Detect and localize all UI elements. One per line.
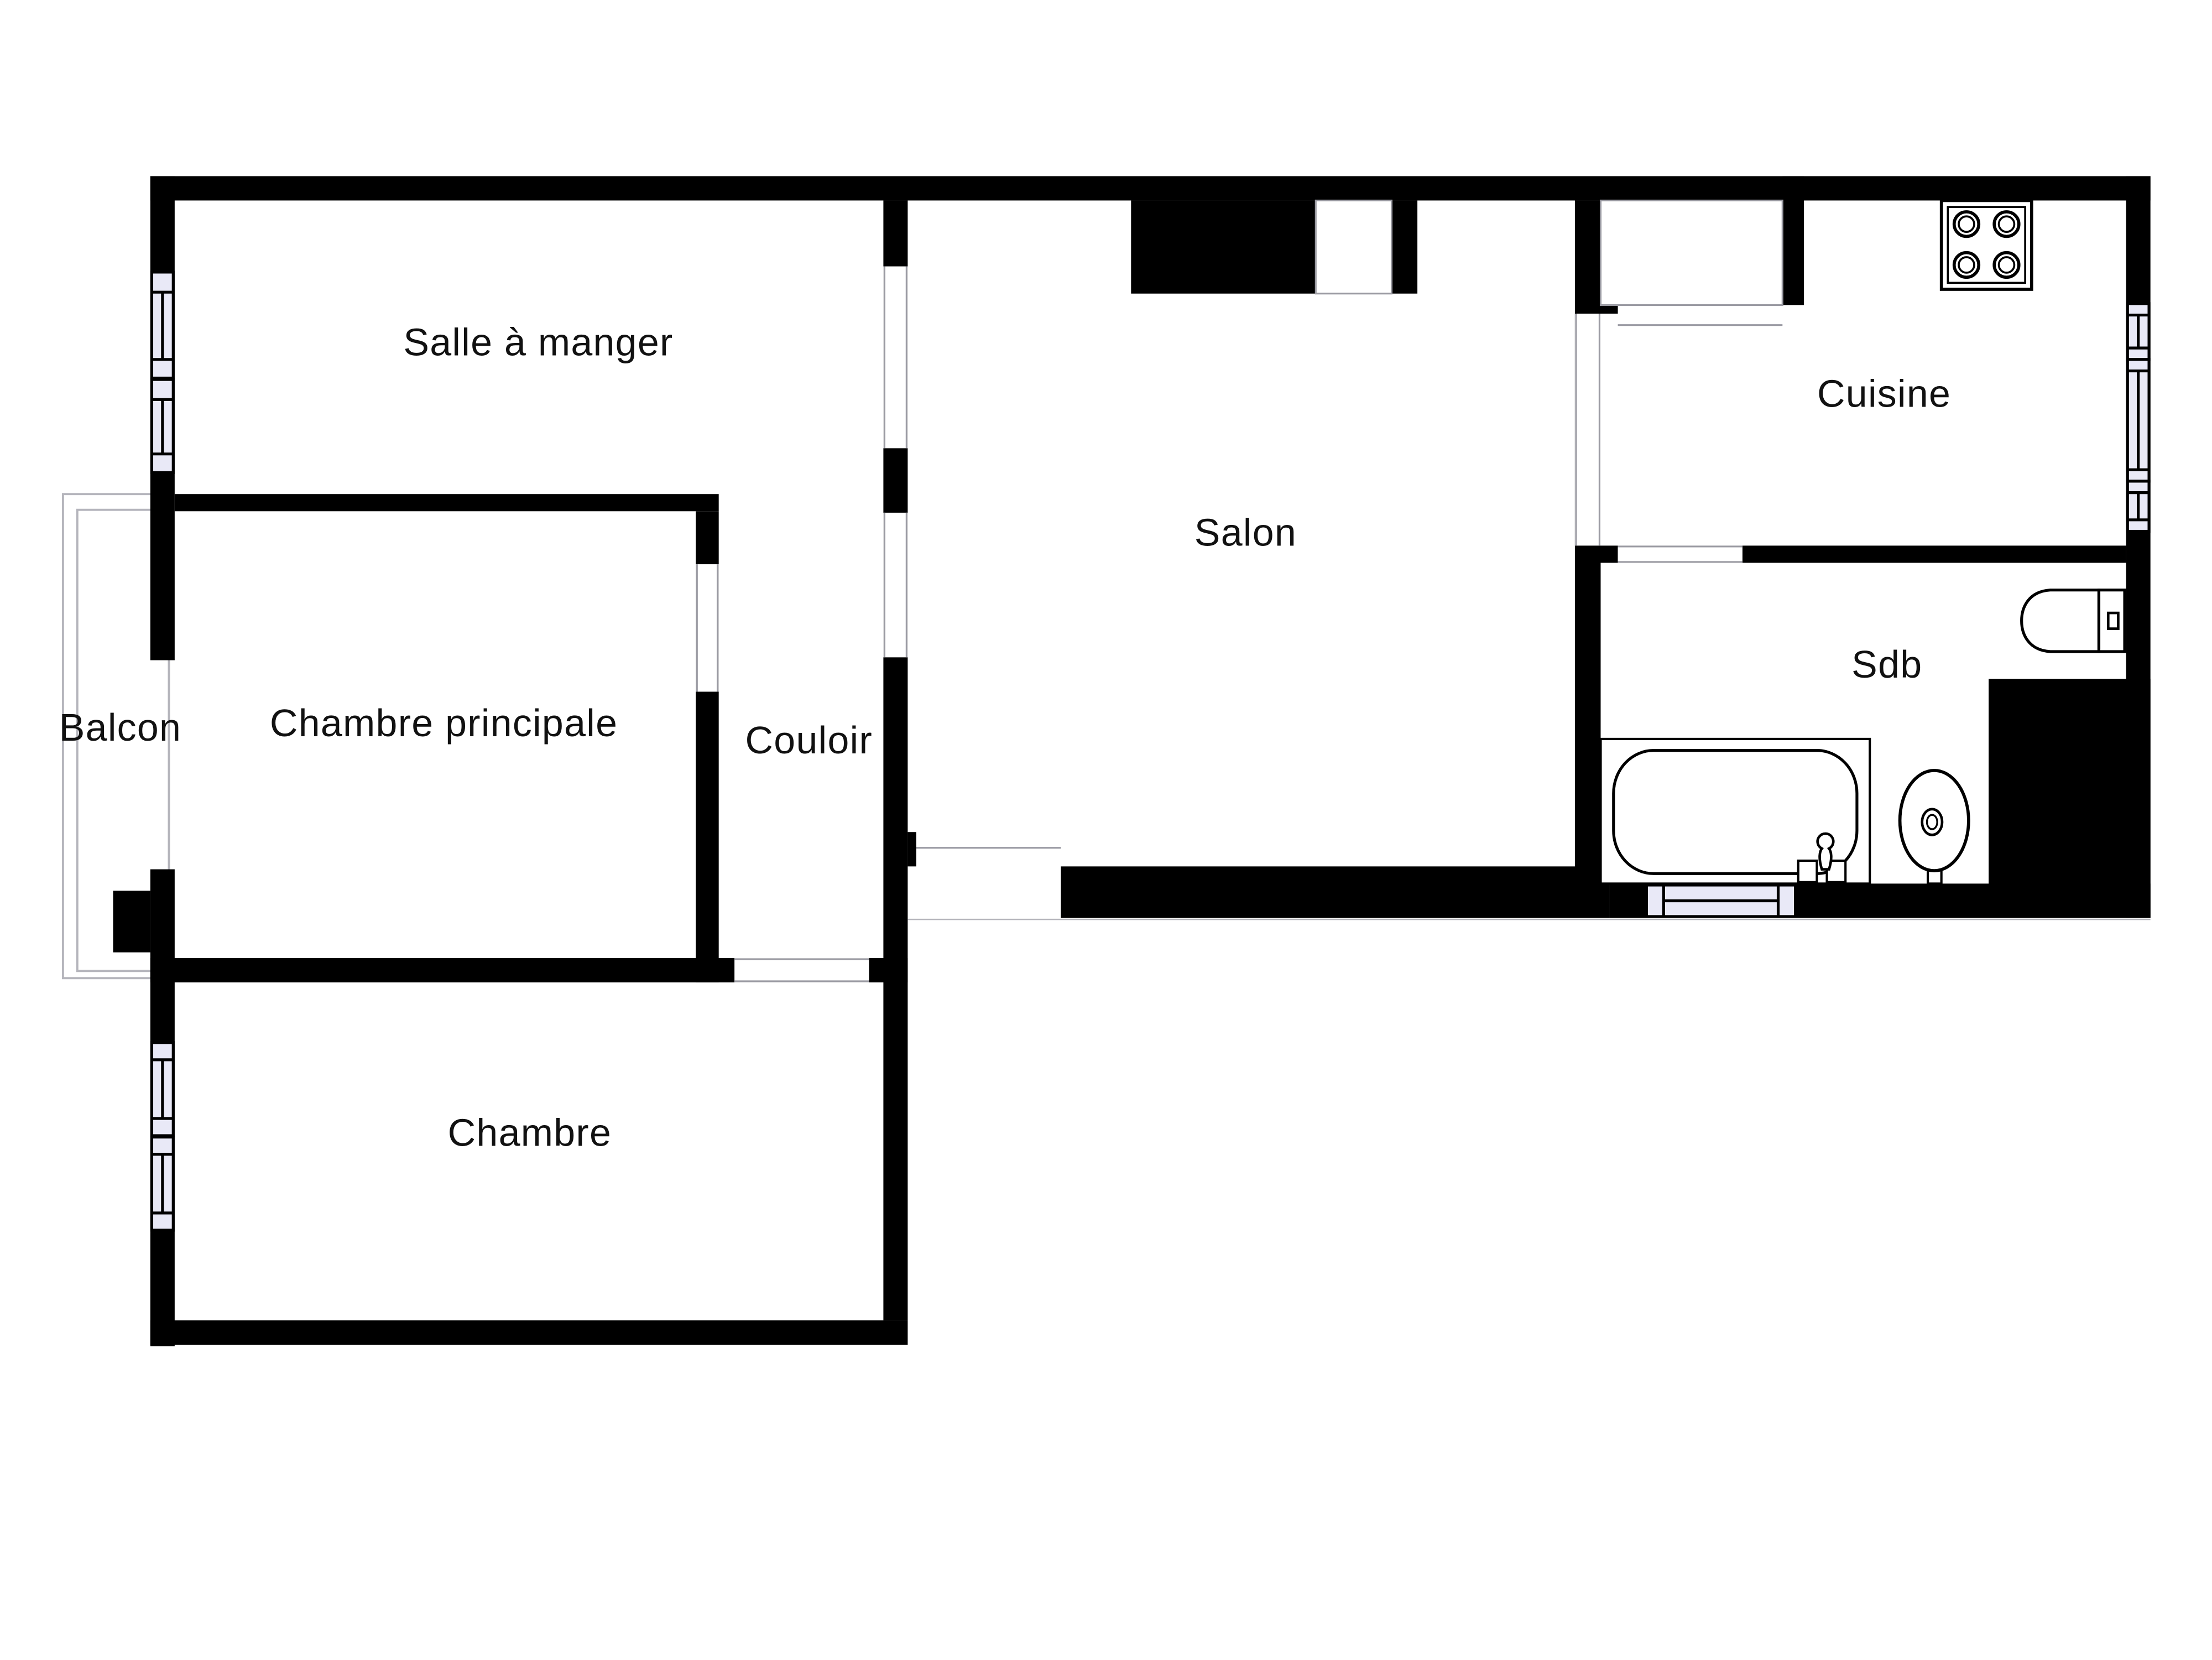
room-label-salle-a-manger: Salle à manger — [403, 320, 673, 363]
door-opening-sdb — [1618, 545, 1743, 563]
room-label-balcon: Balcon — [59, 706, 181, 749]
room-label-salon: Salon — [1194, 511, 1297, 554]
bathroom-black-block — [1989, 679, 2151, 918]
window-icon-left-lower — [152, 1043, 173, 1230]
toilet-icon — [2022, 590, 2125, 652]
room-label-sdb: Sdb — [1851, 643, 1922, 686]
room-label-couloir: Couloir — [745, 719, 873, 762]
window-icon-left-upper — [152, 272, 173, 472]
salon-top-niche — [1316, 200, 1391, 293]
middle-wall-opening-lower — [883, 513, 907, 657]
dining-bedroom-divider-wall — [175, 494, 719, 511]
room-label-chambre-principale: Chambre principale — [270, 701, 618, 745]
salon-top-pillar — [1392, 200, 1418, 293]
divider-wall-opening — [1575, 314, 1601, 545]
door-opening-chambre — [734, 958, 869, 982]
door-opening-chambre-principale — [696, 564, 718, 691]
bathtub-icon — [1600, 739, 1870, 883]
window-icon-right — [2127, 304, 2149, 532]
balcony-wall-block — [113, 891, 150, 952]
middle-wall-opening-upper — [883, 267, 907, 449]
salon-bottom-wall — [1061, 866, 1609, 918]
chambre-bottom-wall — [150, 1320, 908, 1345]
room-label-cuisine: Cuisine — [1817, 372, 1951, 415]
divider-step-lower — [1600, 545, 1618, 563]
entry-niche-wall — [1782, 176, 1804, 305]
middle-wall-step — [907, 832, 916, 866]
floor-plan-svg: Salle à manger Salon Cuisine Sdb Balcon … — [0, 0, 2212, 1660]
kitchen-bathroom-divider-wall — [1743, 545, 2126, 563]
window-icon-bathroom — [1646, 885, 1795, 917]
background — [0, 0, 2212, 1660]
stove-icon — [1942, 200, 2032, 289]
top-wall — [150, 176, 2151, 200]
salon-top-block — [1131, 200, 1316, 293]
room-label-chambre: Chambre — [448, 1111, 612, 1154]
floor-plan-page: Salle à manger Salon Cuisine Sdb Balcon … — [0, 0, 2212, 1660]
